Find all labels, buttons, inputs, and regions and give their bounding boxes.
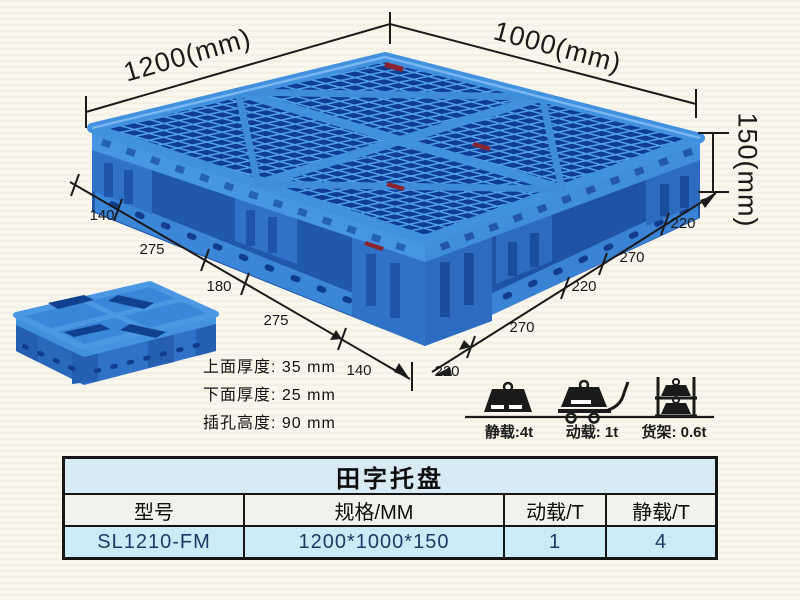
static-load-label: 静载:4t <box>474 421 544 442</box>
dim-right-270a: 270 <box>502 319 542 336</box>
product-sheet: 1200(mm) 1000(mm) 150(mm) 140 275 180 27… <box>0 0 800 600</box>
dim-right-220c: 220 <box>663 215 703 232</box>
rack-load-icon <box>655 377 697 417</box>
dim-left-140a: 140 <box>82 207 122 224</box>
dim-left-140b: 140 <box>339 362 379 379</box>
header-dynamic-load: 动载/T <box>505 495 607 525</box>
header-model: 型号 <box>65 495 245 525</box>
rack-load-label: 货架: 0.6t <box>631 421 717 442</box>
dim-left-275a: 275 <box>132 241 172 258</box>
cell-spec: 1200*1000*150 <box>245 527 505 557</box>
cell-static-load: 4 <box>607 527 715 557</box>
dim-right-220b: 220 <box>564 278 604 295</box>
spec-fork-height: 插孔高度: 90 mm <box>203 410 336 438</box>
spec-table: 田字托盘 型号 规格/MM 动载/T 静载/T SL1210-FM 1200*1… <box>62 456 718 560</box>
load-icons <box>465 377 714 423</box>
table-data-row: SL1210-FM 1200*1000*150 1 4 <box>65 527 715 557</box>
spec-bottom-thickness: 下面厚度: 25 mm <box>203 382 336 410</box>
dim-left-275b: 275 <box>256 312 296 329</box>
header-spec: 规格/MM <box>245 495 505 525</box>
cell-model: SL1210-FM <box>65 527 245 557</box>
table-header-row: 型号 规格/MM 动载/T 静载/T <box>65 495 715 527</box>
dim-left-180: 180 <box>199 278 239 295</box>
thickness-specs: 上面厚度: 35 mm 下面厚度: 25 mm 插孔高度: 90 mm <box>203 354 336 438</box>
dimension-label-150: 150(mm) <box>732 113 763 223</box>
table-title: 田字托盘 <box>65 459 715 495</box>
inset-pallet-illustration <box>16 284 216 385</box>
dim-right-220a: 220 <box>427 363 467 380</box>
dynamic-load-label: 动载: 1t <box>553 421 631 442</box>
static-load-icon <box>484 383 532 412</box>
header-static-load: 静载/T <box>607 495 715 525</box>
cell-dynamic-load: 1 <box>505 527 607 557</box>
dim-right-270b: 270 <box>612 249 652 266</box>
spec-top-thickness: 上面厚度: 35 mm <box>203 354 336 382</box>
